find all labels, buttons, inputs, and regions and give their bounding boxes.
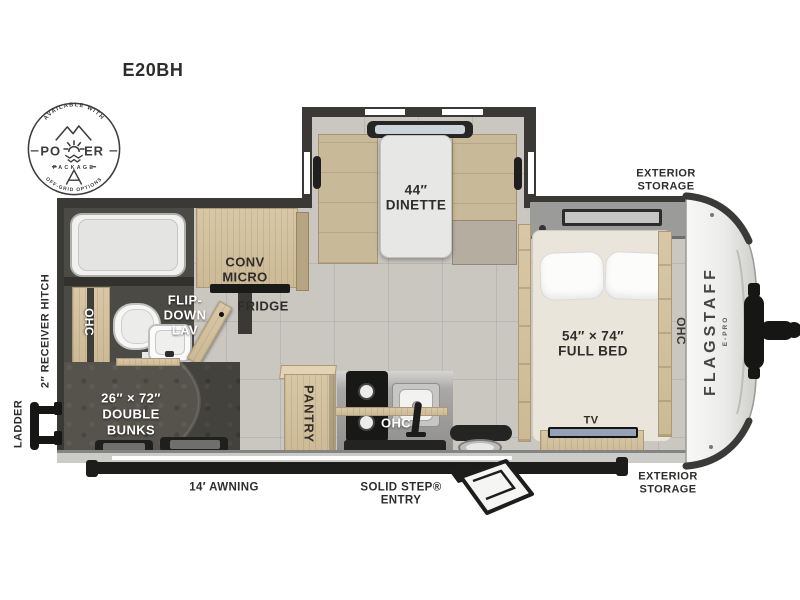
entry-label-2: ENTRY [381,495,422,507]
dinette-size-label: 44″ [405,183,428,197]
brand-name: FLAGSTAFF [703,266,719,396]
fridge-label: FRIDGE [237,300,289,313]
bunks-size-label: 26″ × 72″ [101,392,161,405]
exterior-storage-top-1: EXTERIOR [636,169,695,180]
svg-text:AVAILABLE WITH: AVAILABLE WITH [43,102,105,121]
stove-burner-top [358,383,375,400]
awning-bracket-left [86,460,98,477]
slide-window-top-right [442,109,483,115]
exterior-storage-bottom-2: STORAGE [640,485,697,496]
page-title: E20BH [122,61,183,79]
bath-ohc-label: OHC [83,308,95,336]
front-cap [678,182,800,482]
faucet-handle [406,432,426,437]
cap-rivet-top [710,213,714,217]
svg-text:OFF-GRID OPTIONS: OFF-GRID OPTIONS [44,176,104,193]
shower-front-wall [64,277,194,286]
bunks-label-2: DOUBLE [102,408,159,421]
bed-left-cabinet [518,224,531,442]
wall-top-left [57,198,307,208]
bed-right-ohc [658,231,672,437]
ladder-label: LADDER [14,400,25,448]
slide-window-glass [375,125,465,134]
awning-bar [92,462,628,474]
lav-label-1: FLIP- [168,294,203,307]
slide-window-right [528,152,534,194]
pantry-label: PANTRY [303,385,316,443]
fridge-front [210,284,290,293]
stove-burner-bottom [358,414,375,431]
shower-tub-inner [78,219,178,271]
sun-icon [63,140,84,152]
conv-label: CONV [225,256,264,269]
slide-wall-top [302,107,536,117]
awning-label: 14′ AWNING [189,482,259,494]
awning-bracket-right [616,457,628,476]
dinette-bench-left [318,134,378,264]
entry-label-1: SOLID STEP® [360,482,441,494]
kitchen-ohc-label: OHC [381,417,411,430]
bed-label: FULL BED [558,344,628,358]
lav-label-2: DOWN [164,309,207,322]
bunks-label-3: BUNKS [107,424,155,437]
bed-window-frame [562,209,662,226]
badge-power-left: PO [40,144,61,159]
exterior-storage-top-2: STORAGE [638,182,695,193]
slide-window-left [304,152,310,194]
tv-label: TV [584,416,599,427]
conv-micro-cabinet-side [296,212,309,291]
lav-label-3: LAV [172,324,198,337]
floorplan-canvas: E20BH AVAILABLE WITH PO ER PACKAGE OFF-G… [0,0,800,600]
pantry-shade [329,375,335,457]
bath-door-handle [219,312,224,317]
receiver-hitch-label: 2″ RECEIVER HITCH [41,274,52,388]
water-icon [65,155,82,162]
bed-size-label: 54″ × 74″ [562,329,624,343]
power-package-badge: AVAILABLE WITH PO ER PACKAGE OFF-GRID OP… [26,99,122,199]
dinette-bench-right-base [452,220,517,265]
micro-label: MICRO [222,271,267,284]
teepee-icon [66,170,81,184]
slide-window-top-left [365,109,405,115]
dinette-label: DINETTE [386,198,447,212]
pillow-left [539,251,605,301]
lav-faucet [165,351,174,357]
window-handle-right [514,157,522,190]
exterior-storage-bottom-1: EXTERIOR [638,472,697,483]
mountains-icon [56,126,92,140]
badge-power-right: ER [84,144,104,159]
badge-offgrid-text: OFF-GRID OPTIONS [44,176,104,193]
entry-step-icon [440,455,540,520]
bunk-edge-board [116,358,180,366]
badge-available-text: AVAILABLE WITH [43,102,105,121]
ladder-icon [24,398,68,454]
tongue-jack-icon [744,283,800,379]
tv-screen [548,427,638,438]
window-handle-left [313,156,321,189]
brand-sub: E-PRO [723,316,730,347]
bunk-mat-right-pad [170,440,220,449]
cap-rivet-bottom [709,445,713,449]
